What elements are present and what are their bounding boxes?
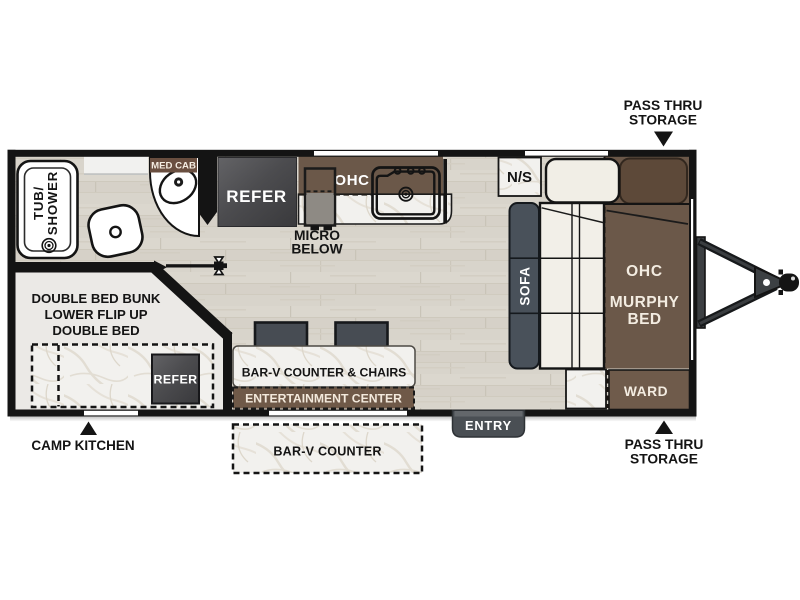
svg-text:OHC: OHC [626,263,663,280]
svg-text:DOUBLE BED: DOUBLE BED [52,323,139,338]
svg-text:ENTRY: ENTRY [465,418,512,433]
svg-text:REFER: REFER [226,187,287,206]
svg-text:OHC: OHC [334,172,369,189]
svg-text:MED CAB: MED CAB [151,161,196,172]
svg-text:SHOWER: SHOWER [45,171,60,235]
svg-text:BED: BED [628,311,662,328]
svg-text:PASS THRU: PASS THRU [625,437,704,452]
svg-text:MURPHY: MURPHY [610,294,680,311]
svg-text:SOFA: SOFA [518,266,533,305]
svg-text:ENTERTAINMENT CENTER: ENTERTAINMENT CENTER [245,392,402,406]
svg-text:WARD: WARD [624,384,668,399]
svg-text:CAMP KITCHEN: CAMP KITCHEN [31,438,134,453]
svg-text:LOWER FLIP UP: LOWER FLIP UP [44,307,147,322]
svg-text:DOUBLE BED BUNK: DOUBLE BED BUNK [32,291,161,306]
svg-text:N/S: N/S [507,169,532,186]
svg-text:STORAGE: STORAGE [630,452,698,467]
svg-text:BELOW: BELOW [291,242,343,257]
svg-text:PASS THRU: PASS THRU [624,98,703,113]
svg-text:BAR-V COUNTER: BAR-V COUNTER [273,445,381,459]
svg-text:REFER: REFER [154,373,198,387]
svg-text:BAR-V COUNTER & CHAIRS: BAR-V COUNTER & CHAIRS [242,366,407,380]
svg-text:TUB/: TUB/ [31,186,46,220]
svg-text:STORAGE: STORAGE [629,113,697,128]
